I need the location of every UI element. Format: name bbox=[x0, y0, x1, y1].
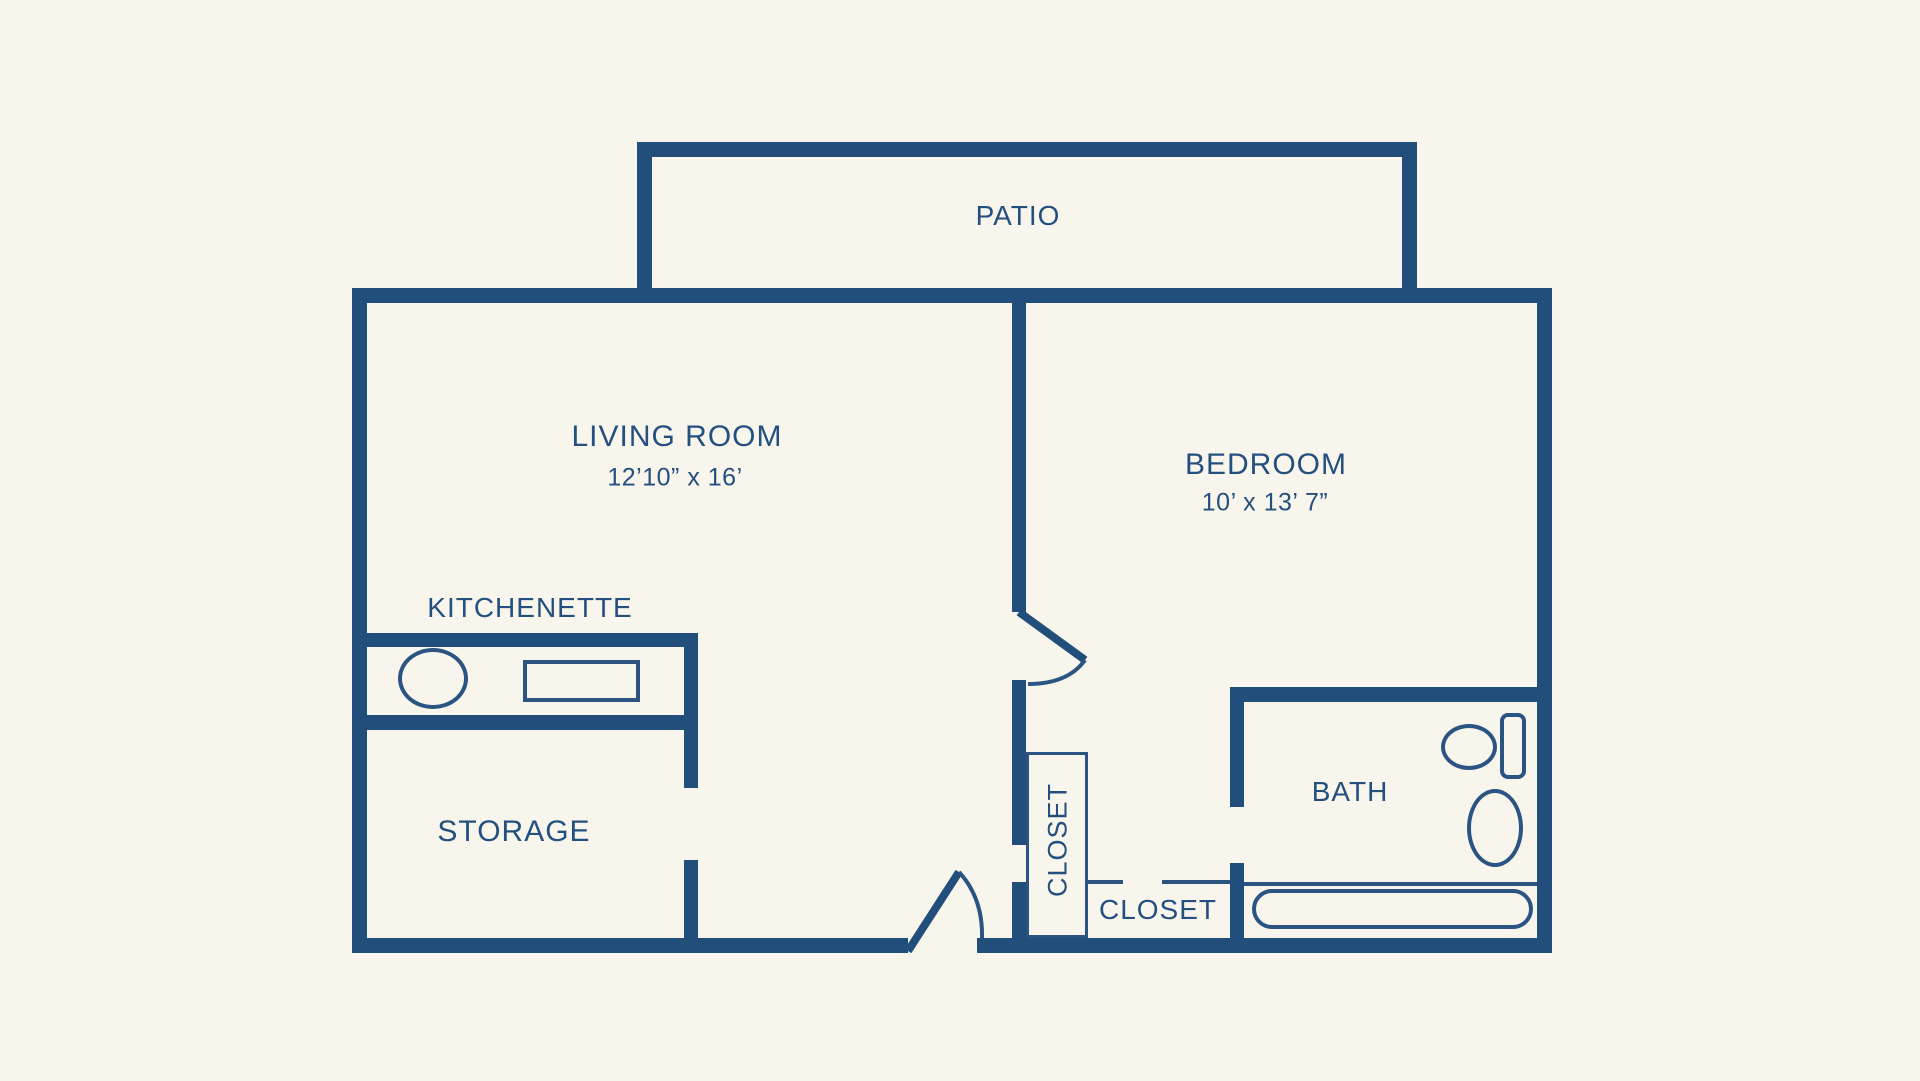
kitchenette-label: KITCHENETTE bbox=[427, 592, 632, 624]
bedroom-door-leaf bbox=[1019, 612, 1085, 660]
entry-door-arc bbox=[959, 872, 982, 938]
floor-plan: PATIO LIVING ROOM 12’10” x 16’ BEDROOM 1… bbox=[0, 0, 1920, 1081]
patio-label: PATIO bbox=[976, 200, 1061, 232]
bedroom-label: BEDROOM bbox=[1185, 448, 1347, 482]
hall-closet-label: CLOSET bbox=[1043, 783, 1074, 897]
bedroom-dimensions: 10’ x 13’ 7” bbox=[1202, 489, 1328, 518]
door-swings bbox=[0, 0, 1920, 1081]
entry-door-leaf bbox=[908, 872, 959, 951]
bedroom-door-arc bbox=[1028, 660, 1085, 684]
entry-closet-label: CLOSET bbox=[1099, 894, 1217, 926]
living-room-label: LIVING ROOM bbox=[571, 420, 782, 454]
bath-label: BATH bbox=[1312, 776, 1389, 808]
living-room-dimensions: 12’10” x 16’ bbox=[607, 464, 742, 493]
storage-label: STORAGE bbox=[437, 815, 590, 849]
